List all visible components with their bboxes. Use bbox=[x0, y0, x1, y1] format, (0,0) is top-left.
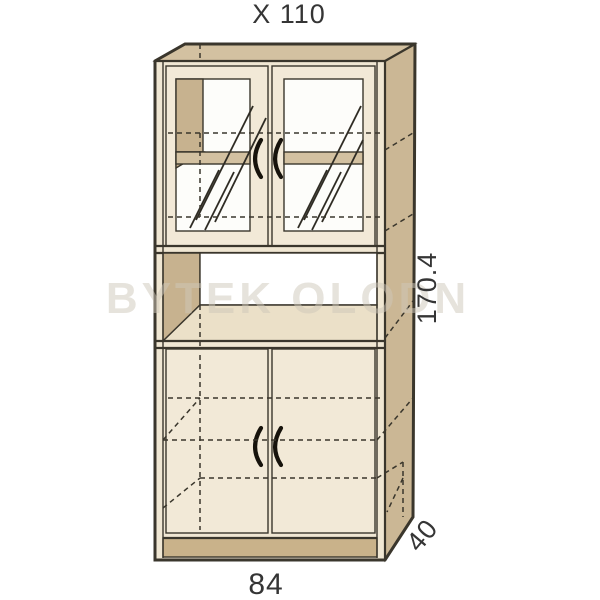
cabinet-top-face bbox=[155, 44, 415, 61]
lower-door-right bbox=[272, 349, 375, 533]
glass-shelf-left bbox=[176, 152, 250, 164]
lower-door-left bbox=[166, 349, 268, 533]
interior-left-wall bbox=[176, 79, 203, 152]
plinth-front bbox=[163, 538, 377, 557]
furniture-dimension-diagram: BYTEK OLODN X 110 170.4 40 84 bbox=[0, 0, 600, 600]
plinth bbox=[163, 538, 377, 557]
width-dimension-label: 84 bbox=[248, 568, 283, 600]
height-dimension-label: 170.4 bbox=[412, 252, 442, 325]
top-dimension-label: X 110 bbox=[252, 0, 326, 29]
